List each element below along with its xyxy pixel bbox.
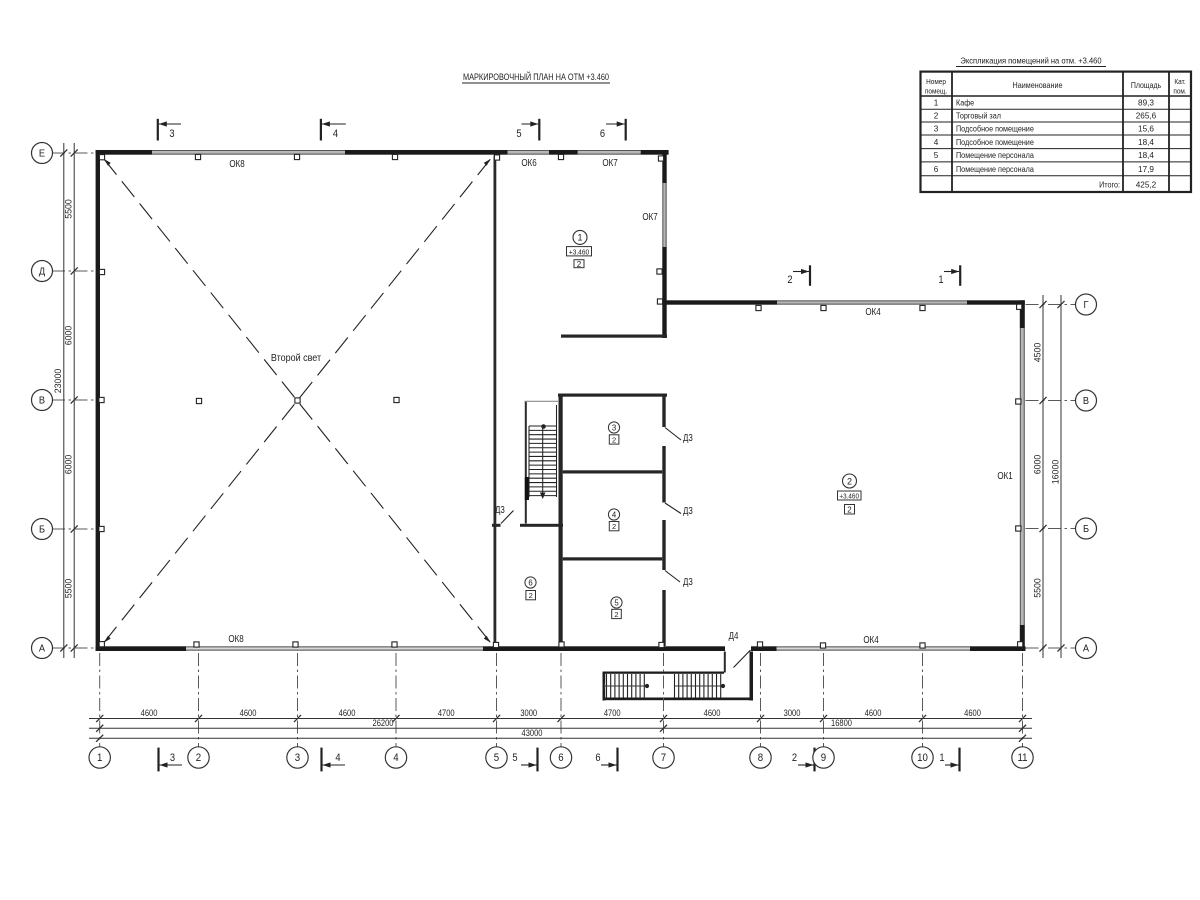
svg-text:А: А [1083,643,1090,655]
svg-text:4: 4 [934,138,939,147]
svg-text:3: 3 [934,125,939,134]
svg-text:5: 5 [614,598,619,607]
svg-text:2: 2 [196,753,202,765]
svg-text:17,9: 17,9 [1138,165,1154,174]
svg-text:265,6: 265,6 [1136,112,1157,121]
svg-text:10: 10 [917,753,928,765]
svg-text:4: 4 [335,752,340,764]
svg-text:Итого:: Итого: [1099,180,1120,190]
svg-text:6: 6 [595,752,600,764]
svg-text:Экспликация помещений на отм.: Экспликация помещений на отм. +3.460 [960,56,1102,66]
svg-text:А: А [39,643,46,655]
svg-text:4600: 4600 [964,707,981,718]
svg-text:2: 2 [577,260,582,269]
svg-text:15,6: 15,6 [1138,125,1154,134]
svg-text:1: 1 [577,233,582,243]
svg-text:Б: Б [39,524,45,536]
svg-text:2: 2 [612,522,616,531]
svg-text:2: 2 [614,610,618,619]
svg-text:4700: 4700 [604,707,621,718]
svg-text:Второй свет: Второй свет [271,353,322,365]
svg-text:Д3: Д3 [495,504,505,515]
svg-text:1: 1 [939,752,944,764]
svg-text:3: 3 [170,752,175,764]
svg-text:4600: 4600 [865,707,882,718]
svg-text:Номер: Номер [926,79,946,87]
svg-text:2: 2 [847,476,852,486]
svg-text:5500: 5500 [64,579,74,599]
svg-text:Д3: Д3 [683,432,693,443]
svg-text:Кафе: Кафе [956,98,974,108]
svg-text:Кат.: Кат. [1174,79,1185,87]
svg-text:помещ.: помещ. [925,88,947,96]
svg-text:Е: Е [39,148,46,160]
svg-text:ОК8: ОК8 [229,158,244,169]
svg-text:1: 1 [938,274,943,286]
svg-text:В: В [1083,396,1090,408]
svg-text:ОК6: ОК6 [521,157,536,168]
svg-text:6000: 6000 [1033,455,1043,475]
svg-text:3: 3 [169,128,174,140]
svg-text:пом.: пом. [1173,88,1186,96]
svg-text:Б: Б [1083,524,1089,536]
svg-text:1: 1 [934,99,939,108]
svg-text:5500: 5500 [64,199,74,219]
svg-text:6: 6 [600,128,605,140]
svg-text:2: 2 [529,591,533,600]
svg-text:Д4: Д4 [729,630,739,641]
svg-text:6000: 6000 [64,455,74,475]
svg-text:5: 5 [512,752,517,764]
svg-text:8: 8 [758,753,764,765]
svg-text:+3.460: +3.460 [839,493,859,500]
svg-text:Д3: Д3 [683,576,693,587]
svg-text:425,2: 425,2 [1136,181,1157,190]
svg-text:ОК7: ОК7 [602,157,617,168]
svg-text:В: В [39,395,46,407]
svg-text:Площадь: Площадь [1131,80,1161,90]
svg-text:Подсобное помещение: Подсобное помещение [956,124,1034,134]
svg-text:4700: 4700 [438,707,455,718]
svg-text:16800: 16800 [831,717,852,728]
svg-text:23000: 23000 [53,369,63,394]
svg-text:43000: 43000 [522,727,543,738]
svg-text:5500: 5500 [1033,578,1043,598]
svg-text:4600: 4600 [240,707,257,718]
svg-text:9: 9 [821,753,827,765]
svg-text:Д3: Д3 [683,505,693,516]
svg-text:6: 6 [558,753,564,765]
svg-text:3000: 3000 [520,707,537,718]
svg-text:ОК7: ОК7 [642,211,657,222]
svg-text:18,4: 18,4 [1138,138,1154,147]
svg-text:7: 7 [661,753,667,765]
svg-text:5: 5 [516,128,521,140]
svg-text:3000: 3000 [784,707,801,718]
svg-text:5: 5 [934,151,939,160]
svg-text:26200: 26200 [373,717,394,728]
svg-text:4600: 4600 [141,707,158,718]
svg-text:Подсобное помещение: Подсобное помещение [956,137,1034,147]
svg-text:+3.460: +3.460 [569,249,589,256]
svg-text:3: 3 [612,423,616,432]
svg-text:4600: 4600 [339,707,356,718]
svg-text:ОК1: ОК1 [997,470,1012,481]
svg-text:3: 3 [295,753,301,765]
svg-text:Торговый зал: Торговый зал [956,111,1001,121]
svg-text:1: 1 [97,753,103,765]
svg-text:МАРКИРОВОЧНЫЙ ПЛАН НА ОТМ +3.4: МАРКИРОВОЧНЫЙ ПЛАН НА ОТМ +3.460 [463,70,609,82]
svg-text:4: 4 [393,753,399,765]
svg-text:4500: 4500 [1033,343,1043,363]
svg-text:Наименование: Наименование [1013,81,1063,91]
svg-text:ОК4: ОК4 [865,306,880,317]
svg-text:18,4: 18,4 [1138,151,1154,160]
svg-text:11: 11 [1017,753,1027,765]
svg-text:6: 6 [528,578,532,587]
svg-text:ОК4: ОК4 [863,634,878,645]
svg-text:6: 6 [934,165,939,174]
svg-text:5: 5 [494,753,500,765]
svg-text:2: 2 [847,505,852,514]
svg-text:4: 4 [612,510,617,519]
svg-text:6000: 6000 [64,326,74,346]
svg-text:2: 2 [787,274,792,286]
svg-text:89,3: 89,3 [1138,99,1154,108]
svg-text:2: 2 [792,752,797,764]
svg-text:ОК8: ОК8 [228,633,243,644]
svg-text:4600: 4600 [704,707,721,718]
svg-text:16000: 16000 [1051,460,1061,485]
svg-text:2: 2 [612,435,616,444]
svg-text:2: 2 [934,112,939,121]
svg-text:Д: Д [39,266,46,278]
svg-text:4: 4 [333,128,338,140]
svg-text:Г: Г [1083,300,1089,312]
svg-text:Помещение персонала: Помещение персонала [956,164,1035,174]
svg-text:Помещение персонала: Помещение персонала [956,151,1035,161]
